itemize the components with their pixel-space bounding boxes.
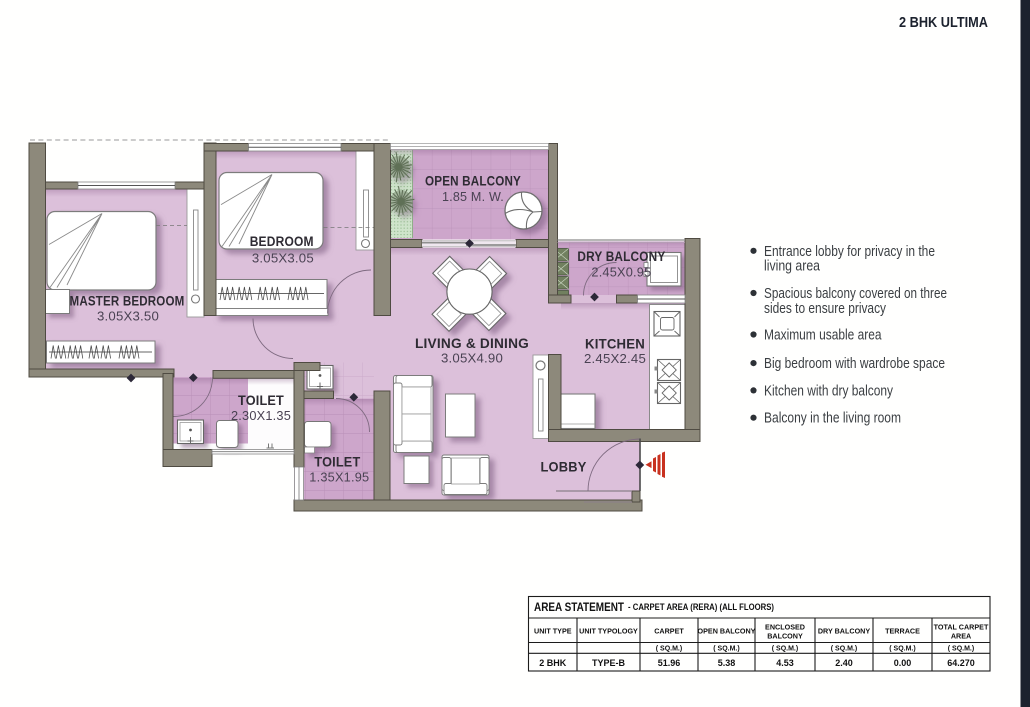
svg-text:Balcony in the living room: Balcony in the living room <box>764 410 901 427</box>
svg-text:2.40: 2.40 <box>835 658 853 668</box>
svg-text:TOILET: TOILET <box>238 393 285 408</box>
svg-text:TYPE-B: TYPE-B <box>592 658 626 668</box>
svg-text:LIVING & DINING: LIVING & DINING <box>415 336 529 351</box>
svg-text:2 BHK: 2 BHK <box>539 658 567 668</box>
svg-text:( SQ.M.): ( SQ.M.) <box>656 646 682 653</box>
svg-text:2.30X1.35: 2.30X1.35 <box>231 408 291 423</box>
svg-text:Maximum usable area: Maximum usable area <box>764 327 882 344</box>
svg-text:1.35X1.95: 1.35X1.95 <box>309 470 369 485</box>
svg-text:- CARPET AREA (RERA) (ALL FLOO: - CARPET AREA (RERA) (ALL FLOORS) <box>628 602 774 612</box>
svg-text:51.96: 51.96 <box>658 658 681 668</box>
svg-text:UNIT TYPOLOGY: UNIT TYPOLOGY <box>579 627 638 636</box>
svg-text:TOILET: TOILET <box>314 455 361 470</box>
svg-text:3.05X3.50: 3.05X3.50 <box>97 309 159 324</box>
svg-text:3.05X4.90: 3.05X4.90 <box>441 351 503 366</box>
svg-text:AREA: AREA <box>951 632 971 641</box>
svg-text:2.45X0.95: 2.45X0.95 <box>591 264 651 279</box>
svg-text:OPEN BALCONY: OPEN BALCONY <box>698 627 756 636</box>
svg-text:BEDROOM: BEDROOM <box>250 234 314 249</box>
svg-text:living area: living area <box>764 258 821 275</box>
svg-text:Big bedroom with wardrobe spac: Big bedroom with wardrobe space <box>764 355 945 372</box>
svg-text:5.38: 5.38 <box>718 658 736 668</box>
svg-text:AREA STATEMENT: AREA STATEMENT <box>534 602 624 614</box>
svg-text:LOBBY: LOBBY <box>541 460 587 475</box>
svg-text:BALCONY: BALCONY <box>767 632 803 641</box>
svg-text:sides to ensure privacy: sides to ensure privacy <box>764 300 886 317</box>
svg-text:( SQ.M.): ( SQ.M.) <box>713 646 739 653</box>
svg-text:0.00: 0.00 <box>894 658 912 668</box>
svg-text:( SQ.M.): ( SQ.M.) <box>889 646 915 653</box>
svg-text:( SQ.M.): ( SQ.M.) <box>948 646 974 653</box>
svg-text:DRY BALCONY: DRY BALCONY <box>818 627 871 636</box>
svg-text:3.05X3.05: 3.05X3.05 <box>252 250 314 265</box>
svg-text:( SQ.M.): ( SQ.M.) <box>831 646 857 653</box>
svg-text:2.45X2.45: 2.45X2.45 <box>584 351 646 366</box>
svg-text:CARPET: CARPET <box>654 627 684 636</box>
svg-text:MASTER BEDROOM: MASTER BEDROOM <box>70 294 185 309</box>
svg-text:2 BHK ULTIMA: 2 BHK ULTIMA <box>899 15 988 31</box>
svg-text:( SQ.M.): ( SQ.M.) <box>772 646 798 653</box>
svg-text:Kitchen with dry balcony: Kitchen with dry balcony <box>764 382 893 399</box>
svg-text:OPEN BALCONY: OPEN BALCONY <box>425 174 521 189</box>
svg-text:4.53: 4.53 <box>776 658 794 668</box>
svg-text:ENCLOSED: ENCLOSED <box>765 623 805 632</box>
svg-text:TOTAL CARPET: TOTAL CARPET <box>934 623 989 632</box>
svg-text:TERRACE: TERRACE <box>885 627 920 636</box>
svg-text:1.85 M. W.: 1.85 M. W. <box>442 189 504 204</box>
svg-text:UNIT TYPE: UNIT TYPE <box>534 627 572 636</box>
svg-text:DRY BALCONY: DRY BALCONY <box>577 249 665 264</box>
svg-text:KITCHEN: KITCHEN <box>585 337 645 352</box>
svg-text:64.270: 64.270 <box>947 658 975 668</box>
